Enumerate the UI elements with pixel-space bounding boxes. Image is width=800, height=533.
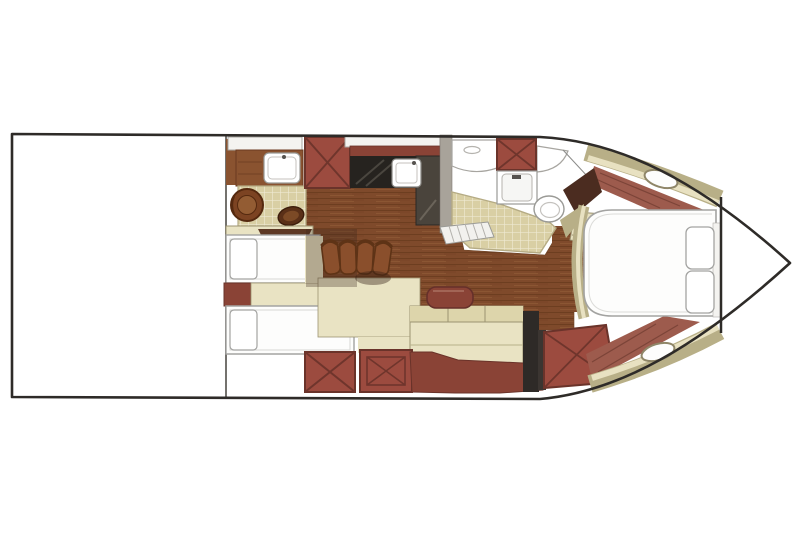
chair-seat: [339, 241, 356, 275]
forward-head: [440, 139, 568, 253]
galley-faucet: [412, 161, 416, 165]
galley-head-partition: [440, 135, 452, 233]
shower-seat-cushion: [238, 196, 257, 215]
galley-cabinet-band: [350, 146, 440, 157]
aft-head: [226, 137, 313, 236]
chair-shadow: [355, 271, 391, 285]
dinette-chair: [339, 241, 356, 275]
berth-2-pillow: [230, 310, 257, 350]
salon-bow-bulkhead: [523, 311, 539, 392]
bow-pillow-port: [686, 227, 714, 269]
salon-table: [427, 287, 473, 308]
berth-1-pillow: [230, 239, 257, 279]
head-entry-seat: [452, 140, 497, 172]
dinette-chair: [321, 240, 341, 275]
yacht-floor-plan-page: [0, 0, 800, 533]
mid-cabin-nightstand: [224, 283, 251, 306]
dinette-chair: [356, 241, 374, 275]
bow-pillow-starboard: [686, 271, 714, 313]
aft-head-faucet: [282, 155, 286, 159]
head-faucet: [512, 175, 521, 179]
yacht-floor-plan: [0, 0, 800, 533]
aft-head-shelf: [228, 137, 302, 150]
